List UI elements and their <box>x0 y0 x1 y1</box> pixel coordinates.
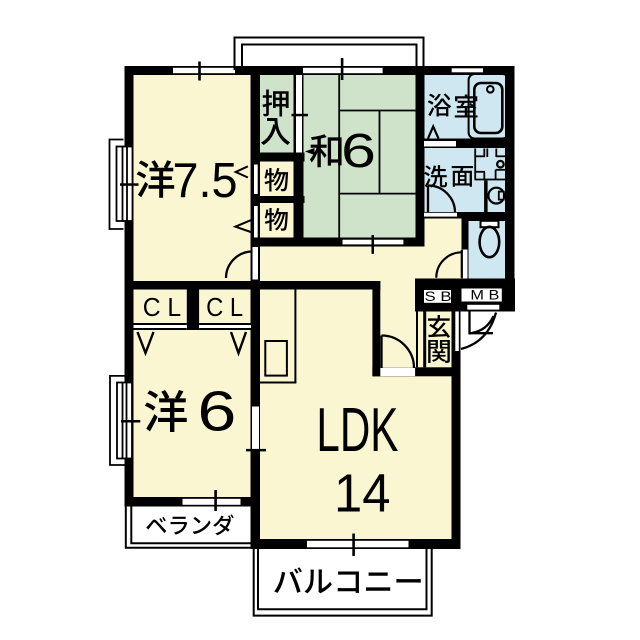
svg-text:C L: C L <box>206 292 243 322</box>
svg-text:7.5: 7.5 <box>173 154 238 208</box>
svg-text:6: 6 <box>197 381 236 444</box>
svg-text:14: 14 <box>334 464 391 524</box>
svg-text:S B: S B <box>425 289 452 304</box>
svg-text:6: 6 <box>341 125 376 178</box>
svg-text:M B: M B <box>470 288 499 303</box>
svg-text:LDK: LDK <box>316 396 398 465</box>
svg-text:C L: C L <box>143 292 182 322</box>
